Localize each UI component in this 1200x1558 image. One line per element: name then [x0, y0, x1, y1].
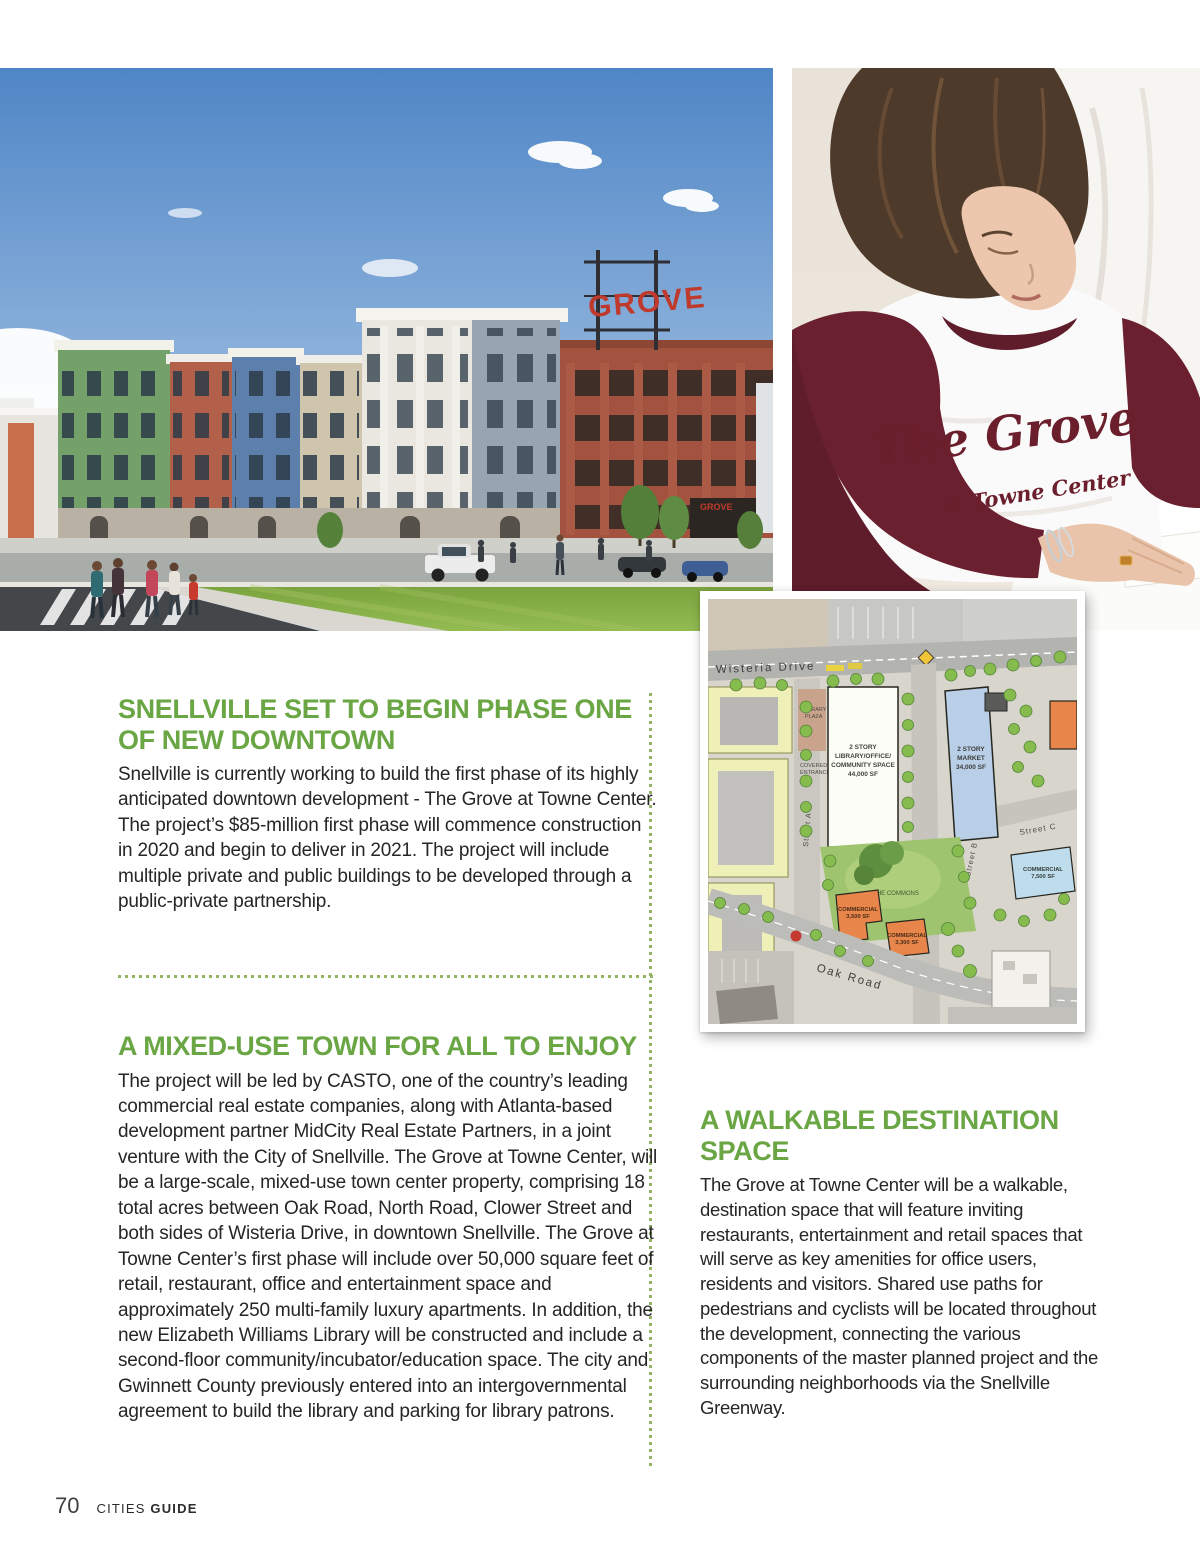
mixed-use-heading: A MIXED-USE TOWN FOR ALL TO ENJOY: [118, 1031, 659, 1062]
dotted-divider-horizontal: [118, 975, 655, 978]
right-column: A WALKABLE DESTINATION SPACE The Grove a…: [700, 1105, 1100, 1421]
svg-text:COMMERCIAL: COMMERCIAL: [838, 907, 878, 913]
left-column-section2: A MIXED-USE TOWN FOR ALL TO ENJOY The pr…: [118, 1031, 659, 1425]
svg-text:3,300 SF: 3,300 SF: [895, 940, 919, 946]
svg-text:2 STORY: 2 STORY: [849, 744, 877, 751]
publication-name-regular: CITIES: [96, 1501, 145, 1516]
svg-text:THE COMMONS: THE COMMONS: [873, 891, 919, 897]
walkable-body: The Grove at Towne Center will be a walk…: [700, 1173, 1100, 1421]
svg-text:COMMUNITY SPACE: COMMUNITY SPACE: [831, 762, 895, 769]
svg-text:34,000 SF: 34,000 SF: [956, 764, 986, 771]
svg-text:COMMERCIAL: COMMERCIAL: [1023, 867, 1063, 873]
publication-name: CITIES GUIDE: [96, 1501, 197, 1516]
svg-text:COMMERCIAL: COMMERCIAL: [887, 933, 927, 939]
phase-one-heading: SNELLVILLE SET TO BEGIN PHASE ONE OF NEW…: [118, 694, 659, 755]
svg-text:7,500 SF: 7,500 SF: [1031, 874, 1055, 880]
svg-text:MARKET: MARKET: [957, 755, 985, 762]
svg-text:LIBRARY/OFFICE/: LIBRARY/OFFICE/: [835, 753, 891, 760]
site-plan-map: Wisteria Drive LIBRARY PLAZA COVERED: [700, 591, 1085, 1032]
page-number: 70: [55, 1493, 79, 1519]
magazine-page: GROVE GROVE: [0, 0, 1200, 1558]
rendering-illustration: GROVE GROVE: [0, 68, 773, 631]
grove-shirt-photo: The Grove at Towne Center: [792, 68, 1200, 630]
svg-text:2 STORY: 2 STORY: [957, 746, 985, 753]
svg-text:44,000 SF: 44,000 SF: [848, 771, 878, 778]
svg-text:3,500 SF: 3,500 SF: [846, 914, 870, 920]
commercial-blue: COMMERCIAL 7,500 SF: [1011, 847, 1075, 899]
svg-text:COVERED: COVERED: [800, 763, 827, 769]
site-plan-svg: Wisteria Drive LIBRARY PLAZA COVERED: [708, 599, 1077, 1024]
page-footer: 70 CITIES GUIDE: [55, 1493, 198, 1519]
commercial-clipped: [1050, 701, 1077, 749]
shirt-photo-illustration: The Grove at Towne Center: [792, 68, 1200, 630]
left-column: SNELLVILLE SET TO BEGIN PHASE ONE OF NEW…: [118, 694, 659, 915]
garage-entrance-sign: GROVE: [700, 502, 733, 512]
svg-text:PLAZA: PLAZA: [805, 714, 823, 720]
mixed-use-body: The project will be led by CASTO, one of…: [118, 1069, 659, 1425]
publication-name-bold: GUIDE: [150, 1501, 197, 1516]
library-building: 2 STORY LIBRARY/OFFICE/ COMMUNITY SPACE …: [828, 687, 898, 847]
phase-one-body: Snellville is currently working to build…: [118, 762, 659, 915]
ring: [1120, 556, 1132, 565]
development-rendering-photo: GROVE GROVE: [0, 68, 773, 631]
distant-buildings: [0, 398, 60, 553]
walkable-heading: A WALKABLE DESTINATION SPACE: [700, 1105, 1100, 1166]
